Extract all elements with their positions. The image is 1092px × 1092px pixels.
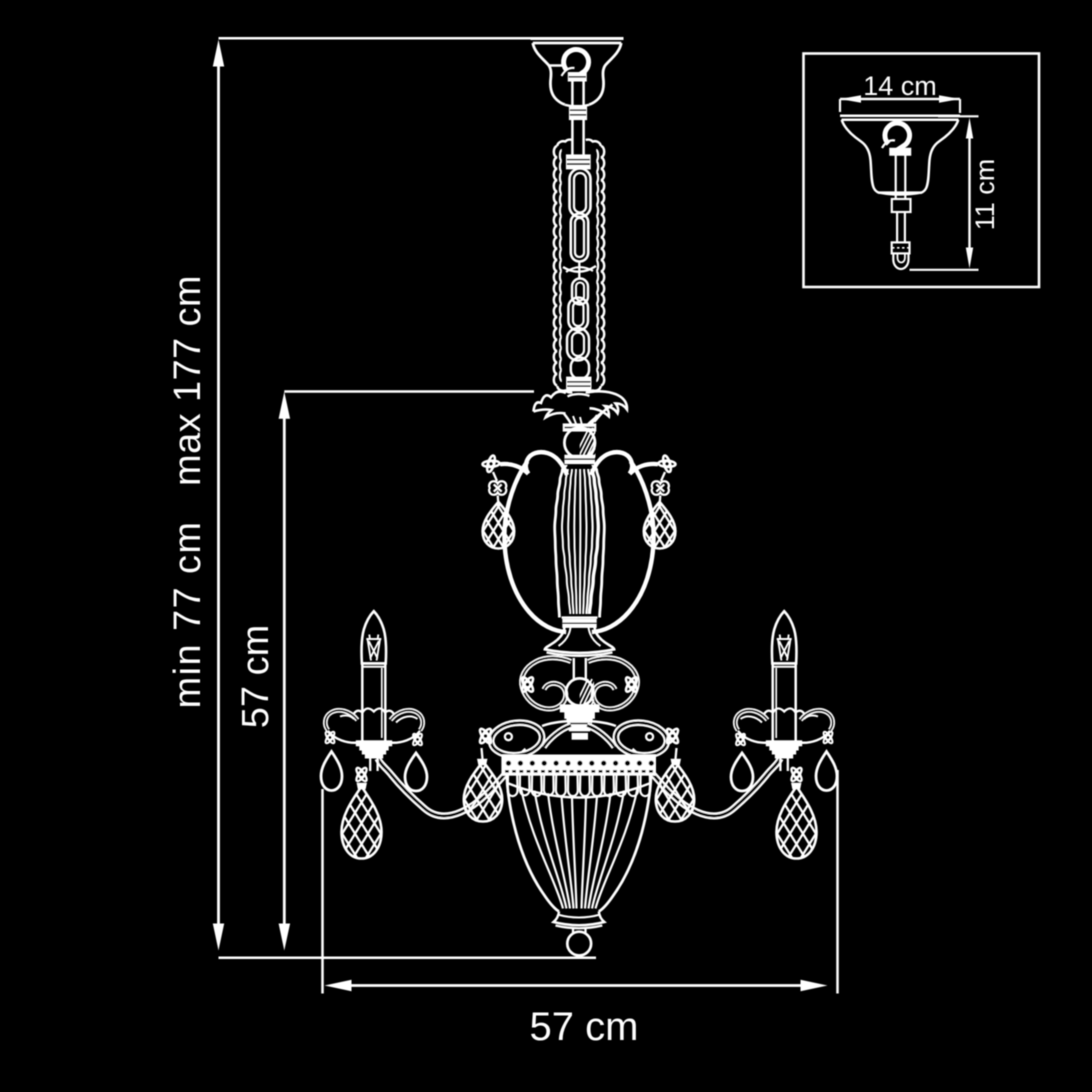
svg-text:max 177 cm: max 177 cm [167,275,209,486]
svg-text:57 cm: 57 cm [530,1005,639,1049]
svg-text:min 77 cm: min 77 cm [167,521,209,709]
svg-text:14 cm: 14 cm [863,71,937,101]
svg-text:57 cm: 57 cm [235,625,277,728]
svg-text:11 cm: 11 cm [970,159,1000,231]
